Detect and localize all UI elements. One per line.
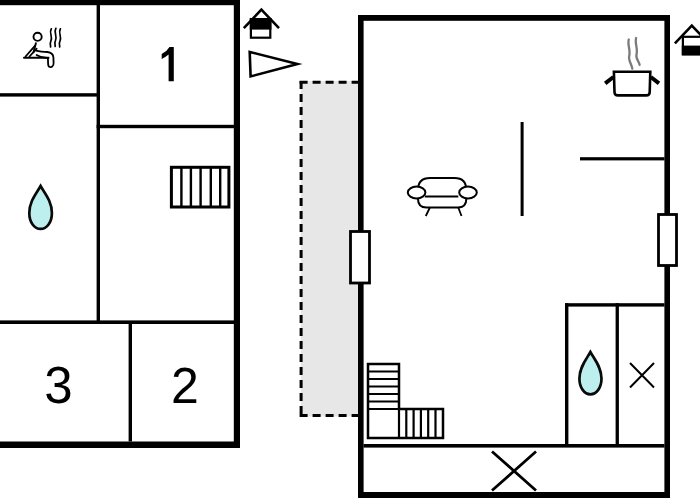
svg-text:2: 2 xyxy=(171,358,199,414)
svg-text:3: 3 xyxy=(44,357,72,414)
